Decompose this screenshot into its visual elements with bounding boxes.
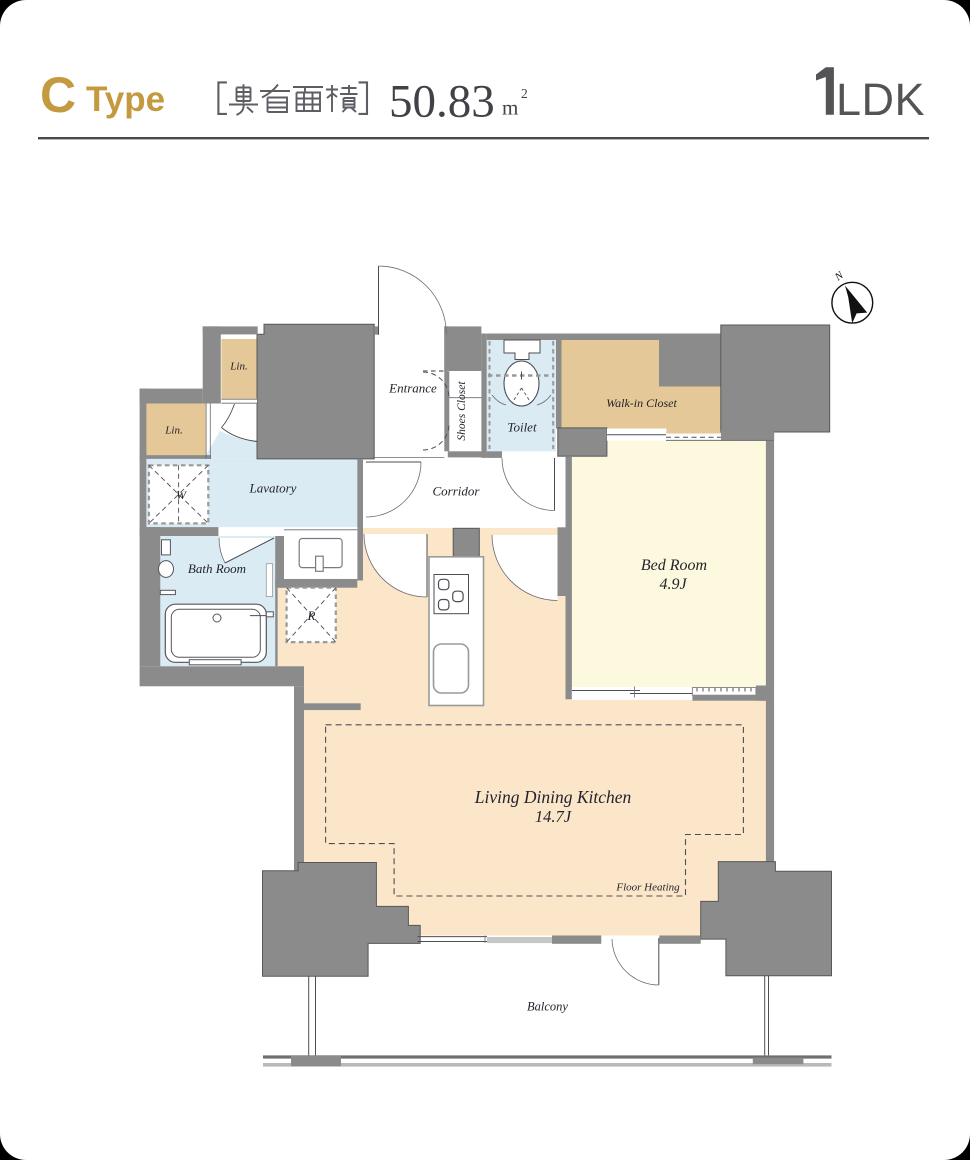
- svg-text:LDK: LDK: [836, 74, 925, 125]
- svg-text:N: N: [832, 269, 846, 284]
- svg-text:Type: Type: [86, 80, 165, 119]
- svg-text:Living Dining Kitchen: Living Dining Kitchen: [474, 787, 632, 807]
- svg-text:50.83: 50.83: [389, 76, 495, 128]
- svg-text:Bed Room: Bed Room: [641, 557, 707, 574]
- svg-text:Balcony: Balcony: [527, 1000, 568, 1014]
- svg-text:Floor Heating: Floor Heating: [615, 882, 680, 894]
- svg-text:Corridor: Corridor: [433, 484, 481, 499]
- svg-text:Lavatory: Lavatory: [249, 481, 297, 496]
- svg-text:m: m: [502, 96, 518, 120]
- svg-text:R: R: [307, 608, 316, 623]
- svg-text:Shoes Closet: Shoes Closet: [456, 381, 468, 441]
- svg-text:Lin.: Lin.: [229, 361, 247, 373]
- svg-text:C: C: [40, 67, 76, 123]
- svg-text:Entrance: Entrance: [388, 381, 437, 396]
- svg-text:14.7J: 14.7J: [535, 807, 572, 826]
- svg-text:Lin.: Lin.: [164, 425, 182, 437]
- svg-text:Bath Room: Bath Room: [188, 561, 246, 576]
- svg-text:Walk-in Closet: Walk-in Closet: [606, 396, 677, 410]
- svg-text:Toilet: Toilet: [507, 420, 537, 435]
- svg-text:2: 2: [521, 86, 528, 101]
- svg-text:4.9J: 4.9J: [659, 576, 687, 593]
- svg-text:W: W: [176, 488, 187, 502]
